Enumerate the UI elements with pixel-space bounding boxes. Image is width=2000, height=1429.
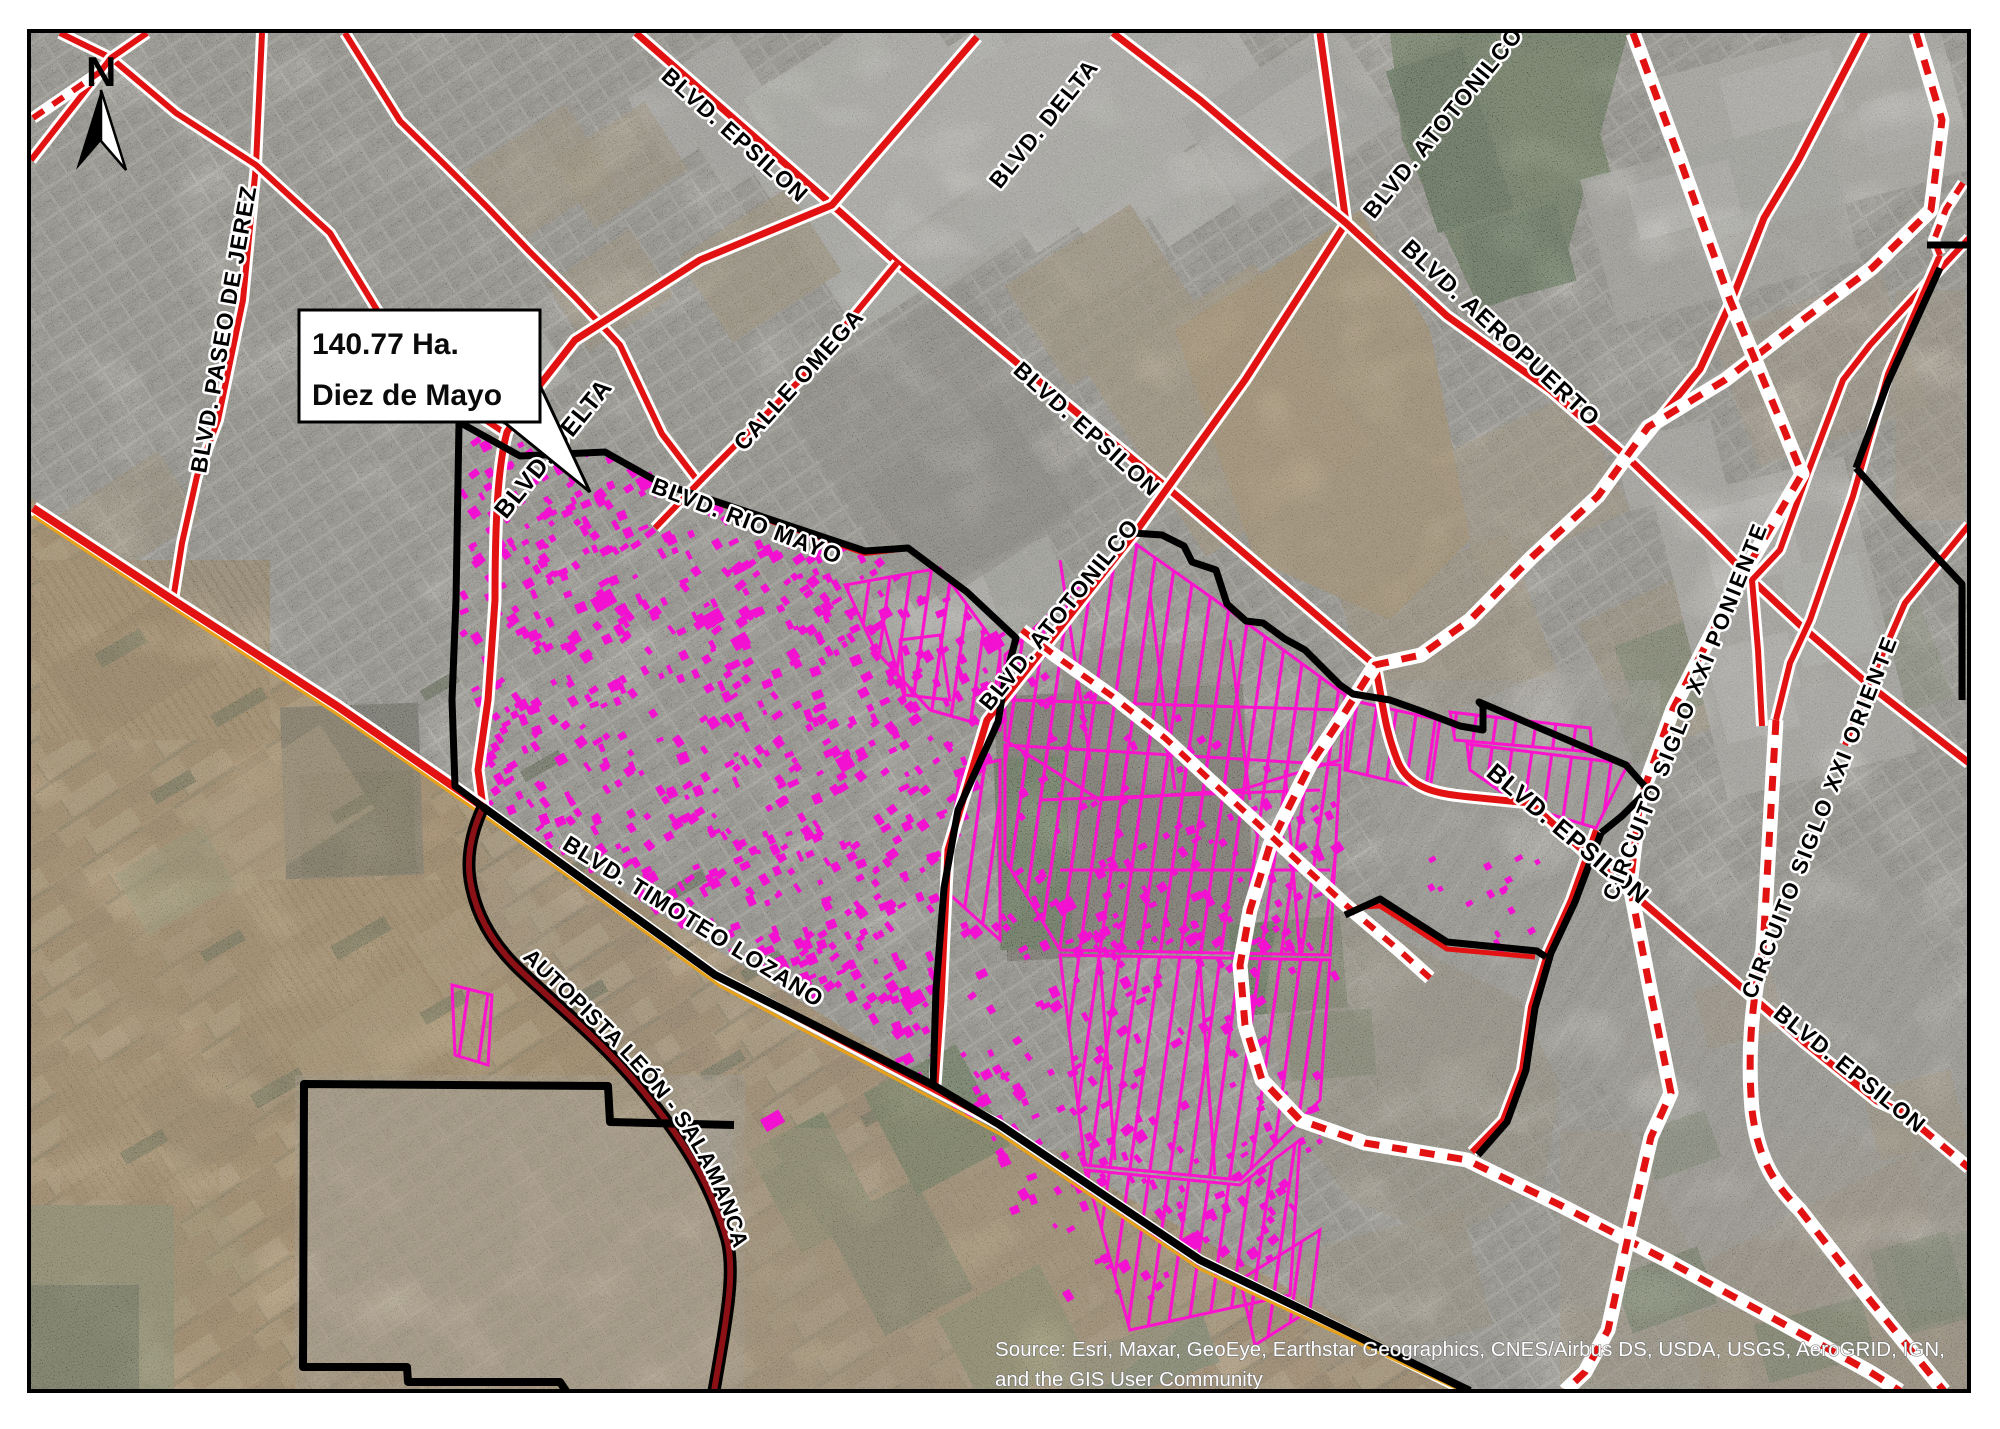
svg-text:Diez de Mayo: Diez de Mayo — [312, 379, 502, 412]
svg-text:Source: Esri, Maxar, GeoEye, E: Source: Esri, Maxar, GeoEye, Earthstar G… — [995, 1338, 1945, 1361]
svg-text:N: N — [86, 48, 116, 95]
svg-text:140.77 Ha.: 140.77 Ha. — [312, 328, 459, 361]
svg-text:and the GIS User Community: and the GIS User Community — [995, 1368, 1263, 1391]
